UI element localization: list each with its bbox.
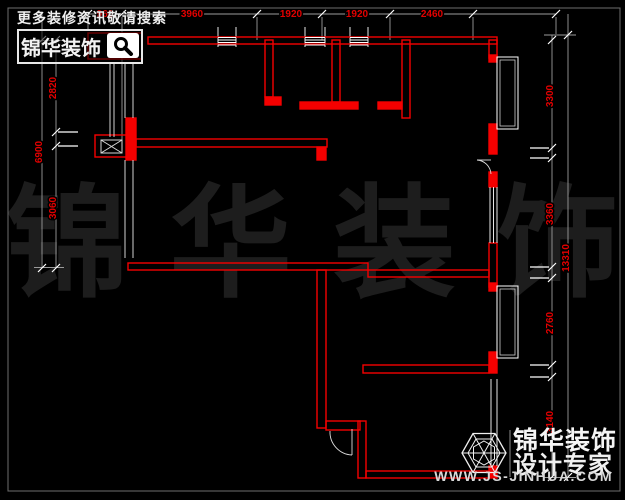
dim-label: 6900 — [34, 140, 45, 163]
bay-window-bottom — [497, 286, 518, 358]
drawing-frame — [8, 8, 620, 491]
entry-door — [330, 429, 352, 455]
wall-west — [317, 270, 326, 428]
wall-living-south — [128, 263, 368, 270]
search-icon — [107, 33, 139, 58]
bay-window-top — [497, 57, 518, 129]
dim-label: 2460 — [421, 9, 444, 20]
window-right-1 — [490, 187, 497, 243]
dimension-ticks — [38, 10, 572, 481]
wall-partition-1 — [265, 40, 273, 97]
dim-label: 3060 — [48, 196, 59, 219]
dim-label: 3300 — [545, 84, 556, 107]
dim-label: 2760 — [545, 311, 556, 334]
footer-website-url: WWW.JS-JINHUA.COM — [434, 468, 613, 484]
wall-corridor — [136, 139, 327, 147]
dimension-lines — [34, 14, 576, 478]
wall-partition-2 — [332, 40, 340, 102]
wall-entry — [326, 421, 360, 430]
dim-label: 3360 — [545, 202, 556, 225]
dim-label: 1920 — [280, 9, 303, 20]
brand-logo-text: 锦华装饰 — [19, 32, 101, 61]
walls — [88, 33, 497, 478]
floor-plan-drawing: 960 3960 1920 1920 2460 2820 3060 6900 3… — [0, 0, 625, 500]
wall-bedroom2-south — [363, 365, 489, 373]
floorplan-sheet: 锦 华 装 饰 — [0, 0, 625, 500]
brand-logo-box: 锦华装饰 — [17, 29, 143, 64]
promo-search-text: 更多装修资讯敬请搜索 — [17, 8, 167, 28]
dim-label: 2820 — [48, 76, 59, 99]
dim-label: 13310 — [561, 244, 572, 272]
dim-label: 3960 — [181, 9, 204, 20]
dim-label: 1920 — [346, 9, 369, 20]
wall-partition-3 — [402, 40, 410, 118]
